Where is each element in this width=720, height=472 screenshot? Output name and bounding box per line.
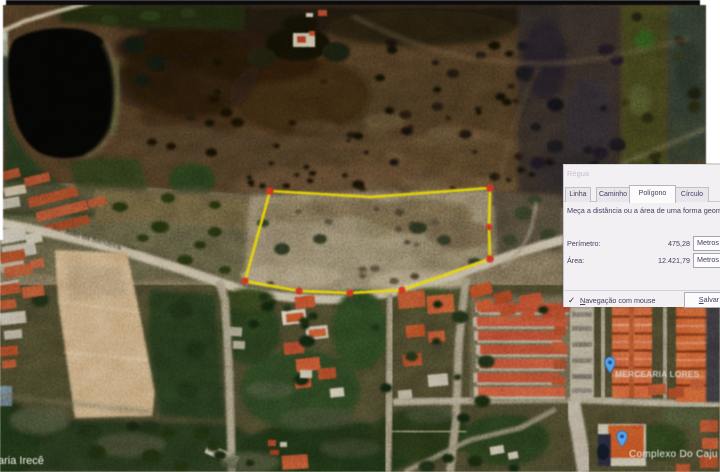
svg-text:MERCEARIA LORES: MERCEARIA LORES — [615, 369, 700, 379]
svg-text:Complexo Do Caju: Complexo Do Caju — [629, 449, 718, 460]
svg-text:aria Irecê: aria Irecê — [0, 455, 44, 467]
